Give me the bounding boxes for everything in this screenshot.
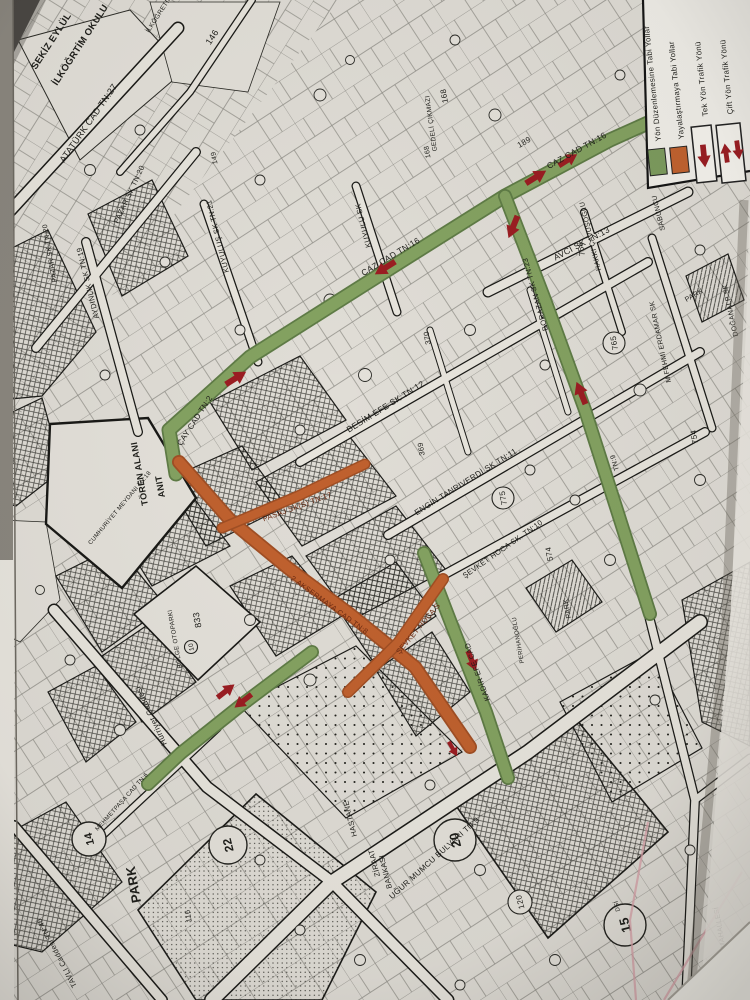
city-plan-map: 146 149 168 168 189 756 765 775 574 754 …: [0, 0, 750, 1000]
map-photo: 146 149 168 168 189 756 765 775 574 754 …: [0, 0, 750, 1000]
vignette: [0, 0, 750, 1000]
photo-artifacts: [0, 0, 750, 1000]
